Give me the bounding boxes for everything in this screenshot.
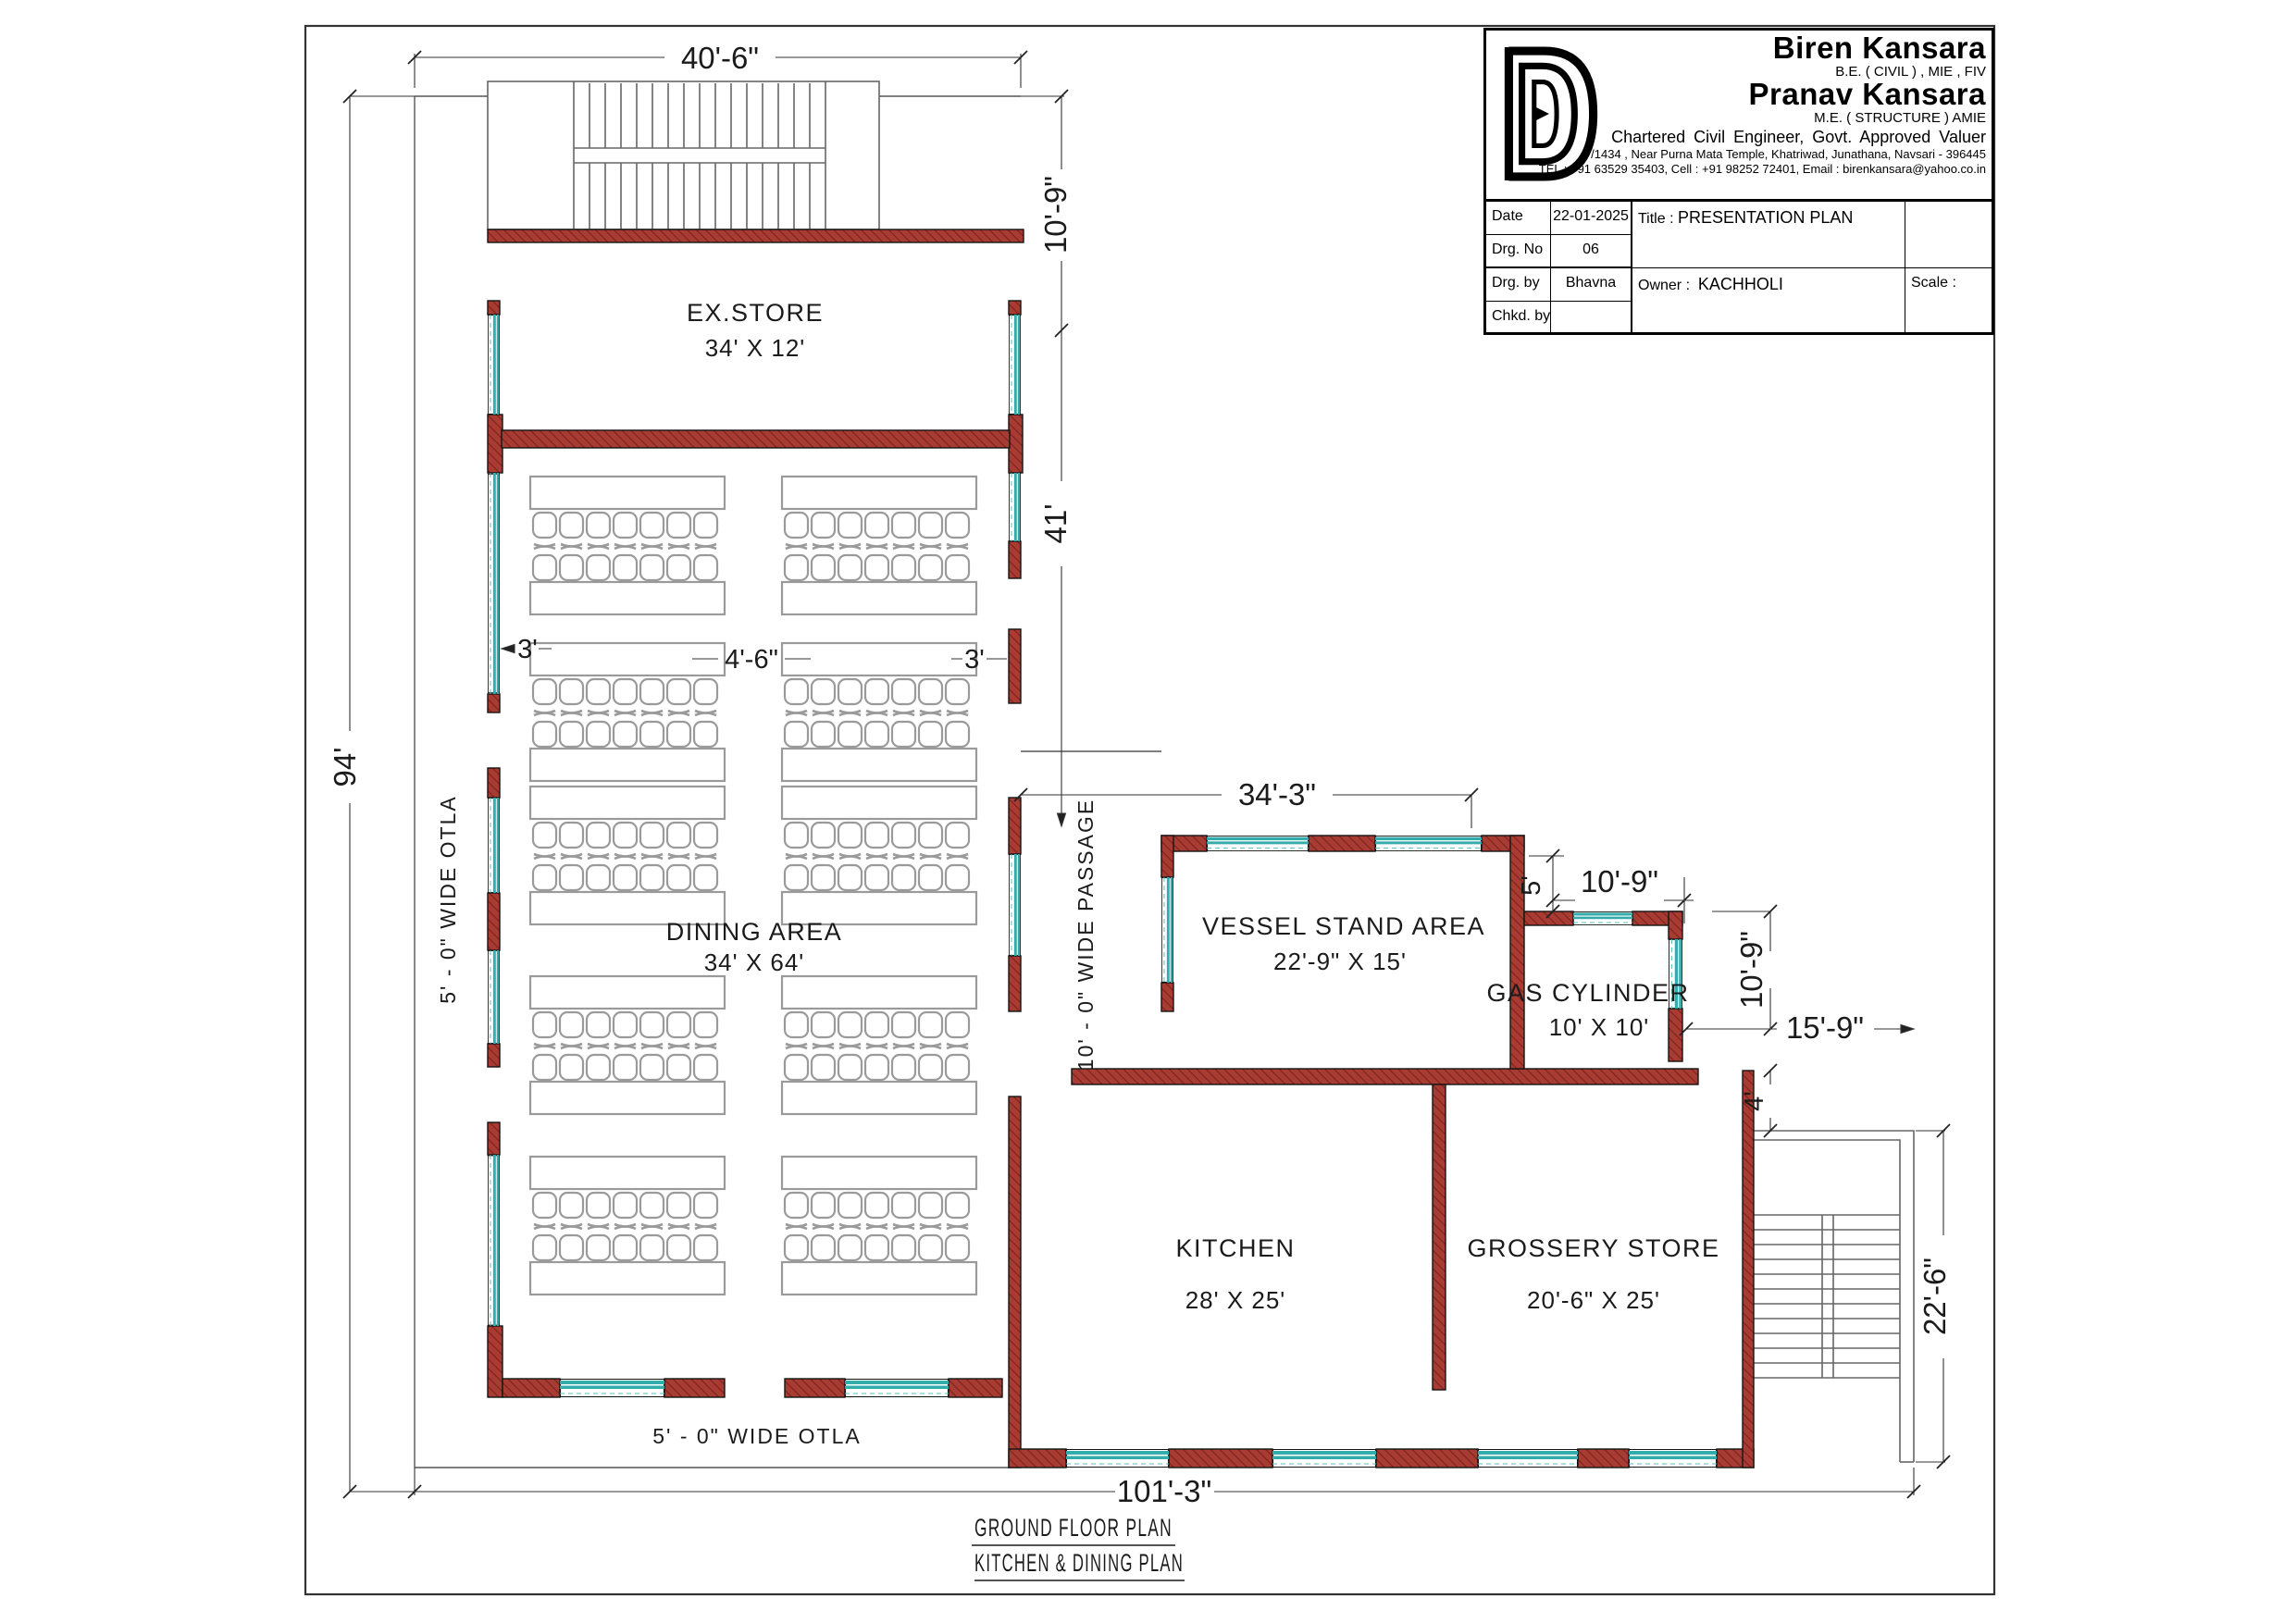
dining-table-set bbox=[782, 643, 976, 781]
room-kitchen-name: KITCHEN bbox=[1175, 1234, 1295, 1262]
field-drgno-label: Drg. No bbox=[1486, 235, 1551, 268]
dining-table-set bbox=[530, 976, 725, 1114]
room-dining-name: DINING AREA bbox=[666, 918, 843, 946]
field-owner: Owner : KACHHOLI bbox=[1632, 268, 1905, 335]
window-icon bbox=[1009, 473, 1020, 541]
dining-table-set bbox=[530, 787, 725, 924]
room-dining-size: 34' X 64' bbox=[704, 948, 805, 976]
window-icon bbox=[488, 950, 499, 1044]
window-icon bbox=[1272, 1450, 1376, 1468]
dim-right-ext: 15'-9" bbox=[1786, 1010, 1864, 1045]
field-title-value: PRESENTATION PLAN bbox=[1678, 208, 1853, 227]
title-block-table: Date 22-01-2025 Title : PRESENTATION PLA… bbox=[1486, 202, 1992, 335]
dim-gap-mid: 4'-6" bbox=[725, 645, 778, 675]
window-icon bbox=[845, 1380, 949, 1397]
field-owner-value: KACHHOLI bbox=[1698, 275, 1783, 293]
dim-gap-right: 3' bbox=[964, 645, 985, 675]
dim-vessel-width: 34'-3" bbox=[1238, 777, 1316, 811]
window-icon bbox=[1009, 315, 1020, 415]
window-icon bbox=[1207, 836, 1309, 850]
engineer-name-2: Pranav Kansara bbox=[1539, 79, 1986, 110]
staircase-top bbox=[488, 81, 879, 229]
field-drgby-value: Bhavna bbox=[1551, 268, 1632, 302]
dim-gap-left: 3' bbox=[517, 635, 538, 664]
field-title-label: Title : bbox=[1638, 211, 1674, 227]
room-grossery-name: GROSSERY STORE bbox=[1467, 1234, 1719, 1262]
dim-step: 5' bbox=[1517, 875, 1546, 896]
field-date-value: 22-01-2025 bbox=[1551, 202, 1632, 235]
field-title: Title : PRESENTATION PLAN bbox=[1632, 202, 1905, 268]
title-block: Biren Kansara B.E. ( CIVIL ) , MIE , FIV… bbox=[1483, 28, 1994, 335]
label-passage: 10' - 0" WIDE PASSAGE bbox=[1074, 799, 1098, 1071]
plan-title-1: GROUND FLOOR PLAN bbox=[974, 1514, 1173, 1542]
window-icon bbox=[488, 1155, 499, 1326]
dim-wall-offset: 4' bbox=[1740, 1091, 1769, 1111]
window-icon bbox=[1009, 854, 1020, 956]
dim-stair-height: 22'-6" bbox=[1917, 1258, 1952, 1335]
dim-gas-height: 10'-9" bbox=[1734, 931, 1769, 1009]
field-chkdby-label: Chkd. by bbox=[1486, 302, 1551, 335]
window-icon bbox=[1629, 1450, 1717, 1468]
drawing-titles: GROUND FLOOR PLAN KITCHEN & DINING PLAN bbox=[972, 1514, 1185, 1580]
label-otla-left: 5' - 0" WIDE OTLA bbox=[436, 795, 460, 1003]
field-owner-label: Owner : bbox=[1638, 278, 1690, 293]
dining-table-set bbox=[782, 1157, 976, 1295]
title-block-header: Biren Kansara B.E. ( CIVIL ) , MIE , FIV… bbox=[1486, 31, 1992, 202]
window-icon bbox=[560, 1380, 664, 1397]
room-vessel-size: 22'-9" X 15' bbox=[1273, 948, 1407, 975]
field-scale-label: Scale : bbox=[1905, 268, 1992, 335]
dining-table-set bbox=[782, 787, 976, 924]
address-line: 7/1434 , Near Purna Mata Temple, Khatriw… bbox=[1539, 148, 1986, 160]
profession-line: Chartered Civil Engineer, Govt. Approved… bbox=[1539, 129, 1986, 145]
field-scale-empty bbox=[1905, 202, 1992, 268]
window-icon bbox=[1573, 911, 1632, 924]
field-chkdby-value bbox=[1551, 302, 1632, 335]
window-icon bbox=[488, 315, 499, 415]
staircase-bottom-right bbox=[1754, 1131, 1914, 1462]
room-kitchen-size: 28' X 25' bbox=[1185, 1286, 1286, 1314]
room-gas-size: 10' X 10' bbox=[1549, 1013, 1650, 1041]
plan-title-2: KITCHEN & DINING PLAN bbox=[974, 1549, 1184, 1577]
dim-total-width: 101'-3" bbox=[1117, 1474, 1211, 1508]
dining-table-set bbox=[530, 643, 725, 781]
window-icon bbox=[1066, 1450, 1169, 1468]
window-icon bbox=[1161, 877, 1173, 983]
engineer-cred-2: M.E. ( STRUCTURE ) AMIE bbox=[1539, 111, 1986, 125]
window-icon bbox=[1375, 836, 1482, 850]
room-exstore-size: 34' X 12' bbox=[705, 334, 806, 362]
field-date-label: Date bbox=[1486, 202, 1551, 235]
dining-table-set bbox=[782, 477, 976, 614]
window-icon bbox=[488, 798, 499, 893]
dim-stair-depth: 10'-9" bbox=[1038, 176, 1073, 254]
field-drgby-label: Drg. by bbox=[1486, 268, 1551, 302]
room-vessel-name: VESSEL STAND AREA bbox=[1202, 912, 1485, 940]
dim-overall-height: 94' bbox=[328, 747, 362, 787]
dim-dining-length: 41' bbox=[1038, 503, 1073, 543]
dining-table-set bbox=[782, 976, 976, 1114]
room-grossery-size: 20'-6" X 25' bbox=[1527, 1286, 1660, 1314]
dining-table-set bbox=[530, 1157, 725, 1295]
window-icon bbox=[1478, 1450, 1578, 1468]
window-icon bbox=[488, 473, 499, 694]
room-gas-name: GAS CYLINDER bbox=[1486, 979, 1689, 1007]
contact-line: TEL : +91 63529 35403, Cell : +91 98252 … bbox=[1539, 163, 1986, 175]
room-exstore-name: EX.STORE bbox=[687, 299, 824, 327]
dim-top-width: 40'-6" bbox=[681, 41, 759, 75]
dining-furniture bbox=[530, 477, 976, 1295]
dim-gas-width: 10'-9" bbox=[1581, 864, 1658, 898]
field-drgno-value: 06 bbox=[1551, 235, 1632, 268]
dining-table-set bbox=[530, 477, 725, 614]
label-otla-bottom: 5' - 0" WIDE OTLA bbox=[652, 1424, 861, 1448]
drawing-sheet: 40'-6" 10'-9" 41' 94' 3' 4'-6" 3' 34'-3"… bbox=[0, 0, 2296, 1623]
engineer-name-1: Biren Kansara bbox=[1539, 32, 1986, 64]
